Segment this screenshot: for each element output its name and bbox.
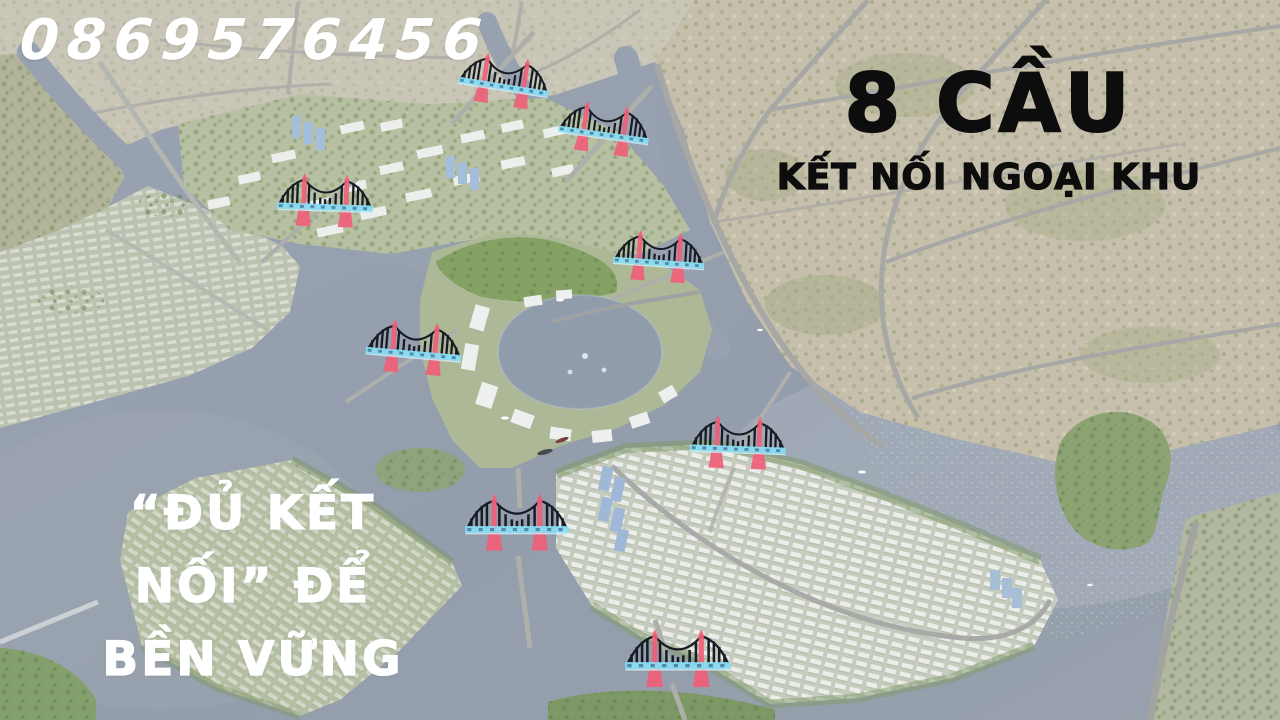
slogan-line-1: “ĐỦ KẾT xyxy=(52,478,454,551)
bridge-icon xyxy=(555,95,654,166)
poster: 0869576456 8 CẦU KẾT NỐI NGOẠI KHU “ĐỦ K… xyxy=(0,0,1280,720)
bridge-icon xyxy=(276,170,374,235)
bridge-icon xyxy=(363,314,464,384)
bridge-icon xyxy=(611,226,706,291)
headline-subtitle: KẾT NỐI NGOẠI KHU xyxy=(733,160,1245,196)
slogan: “ĐỦ KẾT NỐI” ĐỂ BỀN VỮNG xyxy=(52,478,454,697)
bridge-icon xyxy=(689,412,787,477)
bridge-icon xyxy=(465,491,569,558)
bridge-icon xyxy=(625,626,731,694)
slogan-line-3: BỀN VỮNG xyxy=(52,624,454,697)
slogan-line-2: NỐI” ĐỂ xyxy=(52,551,454,624)
phone-number: 0869576456 xyxy=(18,8,492,73)
headline-title: 8 CẦU xyxy=(733,64,1245,144)
headline: 8 CẦU KẾT NỐI NGOẠI KHU xyxy=(733,64,1245,196)
